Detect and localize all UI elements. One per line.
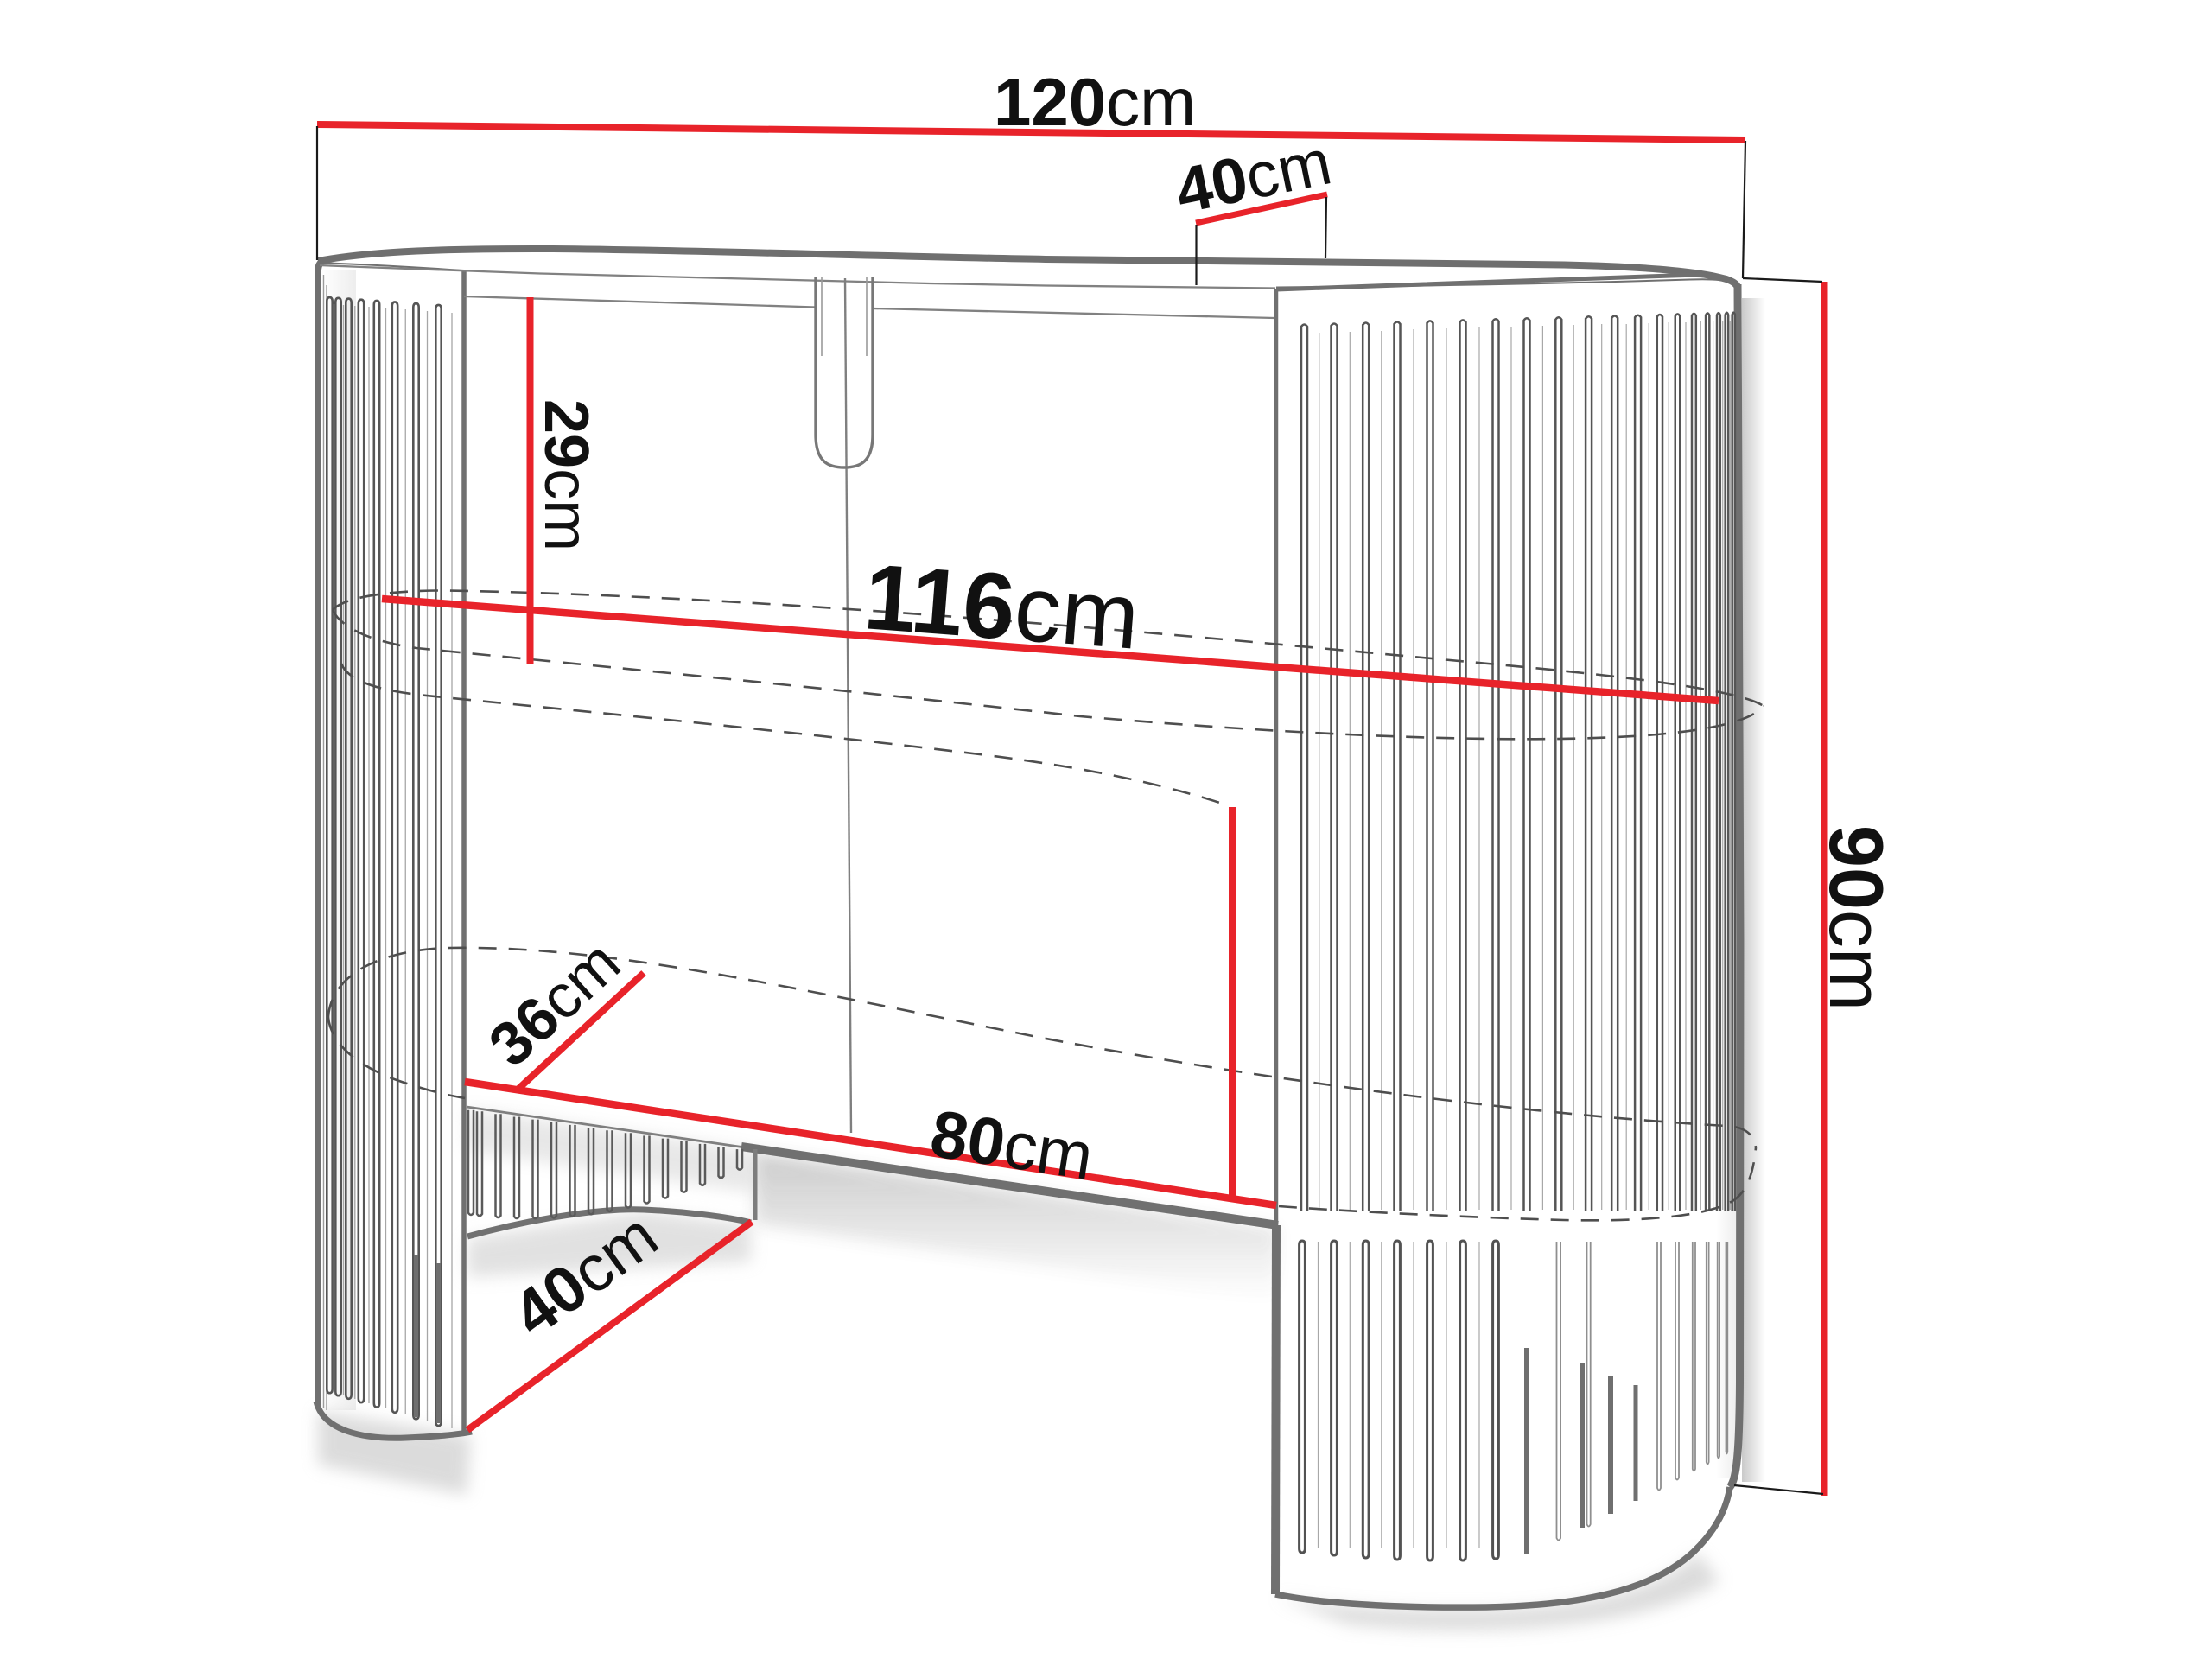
svg-text:116cm: 116cm [861,543,1142,669]
svg-text:90cm: 90cm [1814,825,1899,1011]
svg-text:29cm: 29cm [531,399,601,551]
svg-text:40cm: 40cm [1170,125,1338,226]
svg-text:120cm: 120cm [994,64,1196,140]
